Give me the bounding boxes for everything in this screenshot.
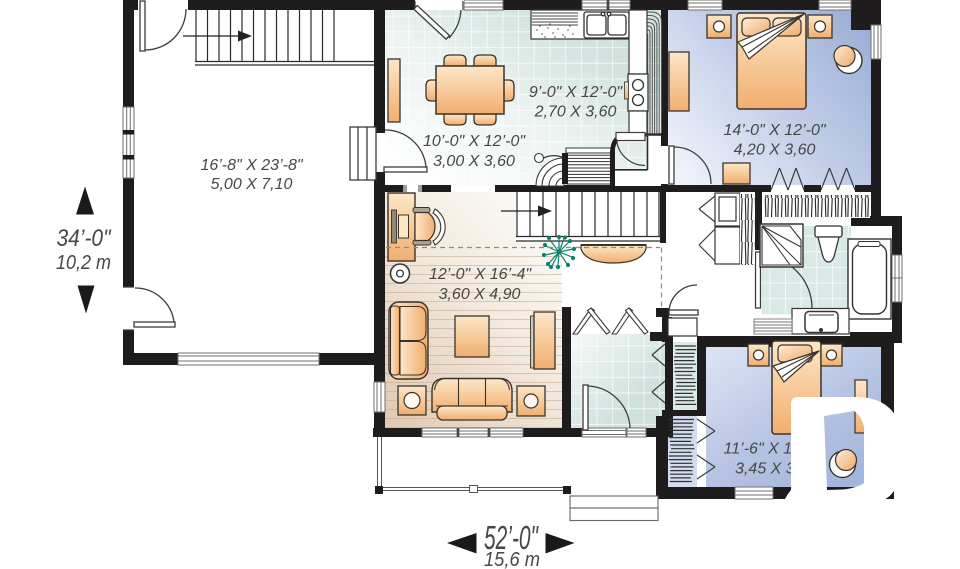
svg-text:9’-0" X 12’-0": 9’-0" X 12’-0": [529, 84, 624, 101]
svg-text:16’-8" X 23’-8": 16’-8" X 23’-8": [200, 157, 303, 174]
svg-text:3,60 X 4,90: 3,60 X 4,90: [439, 286, 521, 303]
svg-text:10’-0" X 12’-0": 10’-0" X 12’-0": [423, 133, 526, 150]
svg-text:3,00 X 3,60: 3,00 X 3,60: [433, 153, 515, 170]
svg-text:14’-0" X 12’-0": 14’-0" X 12’-0": [723, 122, 826, 139]
svg-text:2,70 X 3,60: 2,70 X 3,60: [534, 104, 617, 121]
svg-text:4,20 X 3,60: 4,20 X 3,60: [734, 142, 816, 159]
svg-text:34’-0": 34’-0": [57, 225, 112, 252]
svg-text:12’-0" X 16’-4": 12’-0" X 16’-4": [429, 266, 532, 283]
svg-text:15,6 m: 15,6 m: [484, 549, 540, 569]
svg-text:10,2 m: 10,2 m: [56, 252, 111, 274]
svg-text:5,00 X 7,10: 5,00 X 7,10: [211, 176, 293, 193]
